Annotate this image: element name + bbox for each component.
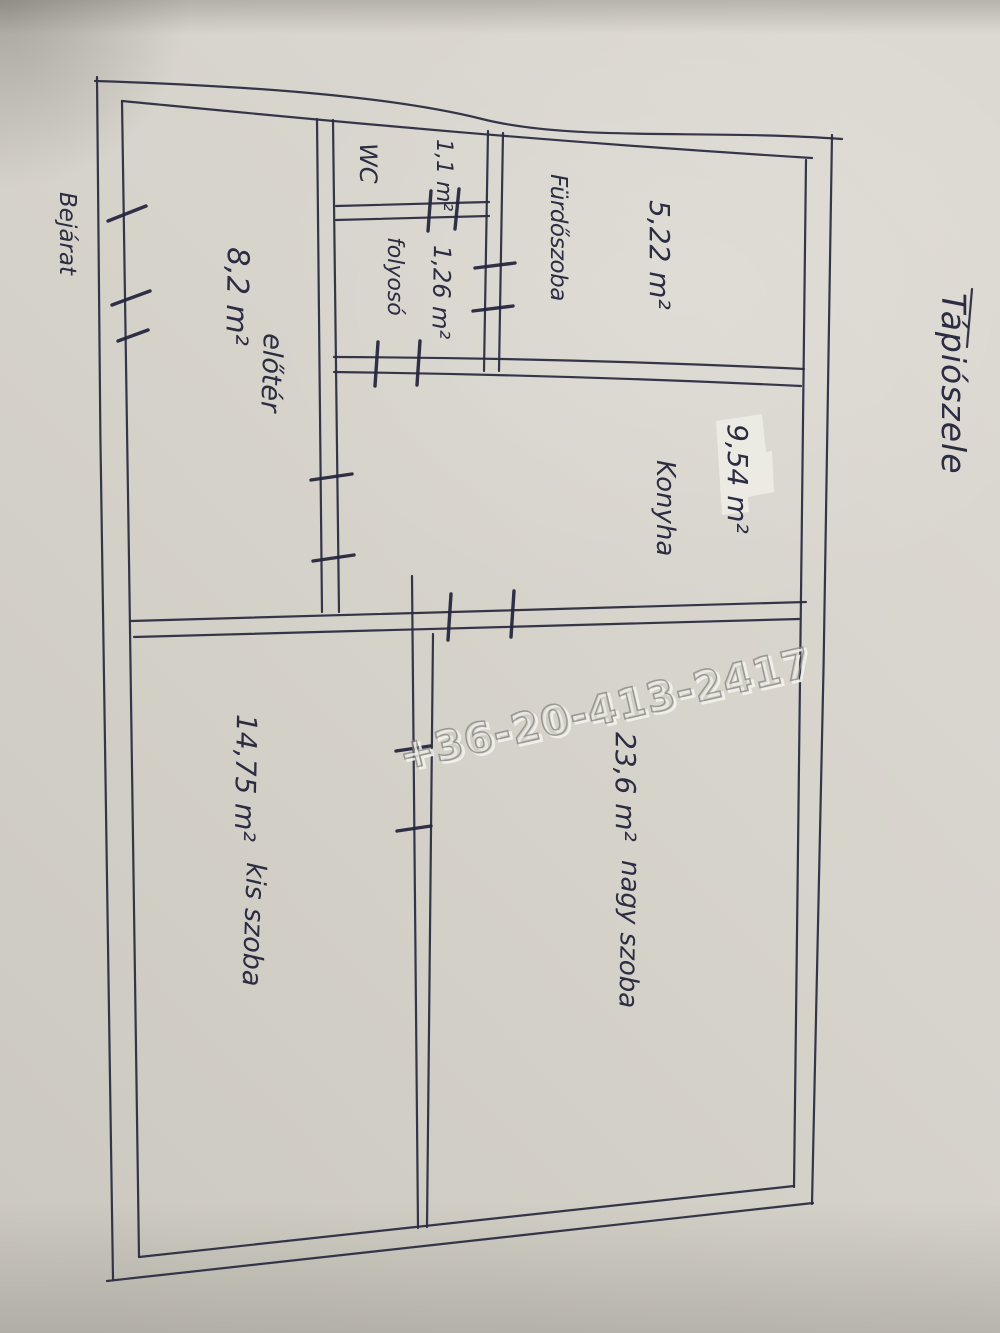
nagy-szoba-name-label: nagy szoba	[612, 860, 645, 1009]
nagy-szoba-area-label: 23,6 m²	[609, 732, 642, 842]
kis-szoba-name-label: kis szoba	[236, 862, 271, 987]
wc-name-label: WC	[354, 143, 382, 184]
title-text: Tápiószele	[934, 293, 973, 475]
kis-szoba-area-label: 14,75 m²	[228, 714, 263, 842]
paper-bottom-shadow	[0, 1200, 1000, 1333]
furdoszoba-name-label: Fürdőszoba	[545, 174, 571, 301]
paper-corner-shadow	[0, 0, 190, 190]
photographed-floor-plan: Tápiószele Bejárat 8,2 m² előtér WC 1,1 …	[0, 0, 1000, 1333]
floorplan-photo: Tápiószele Bejárat 8,2 m² előtér WC 1,1 …	[0, 0, 1000, 1333]
folyoso-name-label: folyosó	[382, 237, 407, 316]
eloter-name-label: előtér	[254, 333, 288, 415]
entrance-label: Bejárat	[54, 192, 80, 276]
folyoso-area-label: 1,26 m²	[426, 245, 456, 340]
eloter-area-label: 8,2 m²	[218, 247, 255, 346]
konyha-area-label: 9,54 m²	[721, 424, 754, 534]
paper-background	[0, 0, 1000, 1333]
wc-area-label: 1,1 m²	[431, 139, 456, 211]
furdoszoba-area-label: 5,22 m²	[643, 200, 676, 310]
konyha-name-label: Konyha	[650, 460, 680, 556]
